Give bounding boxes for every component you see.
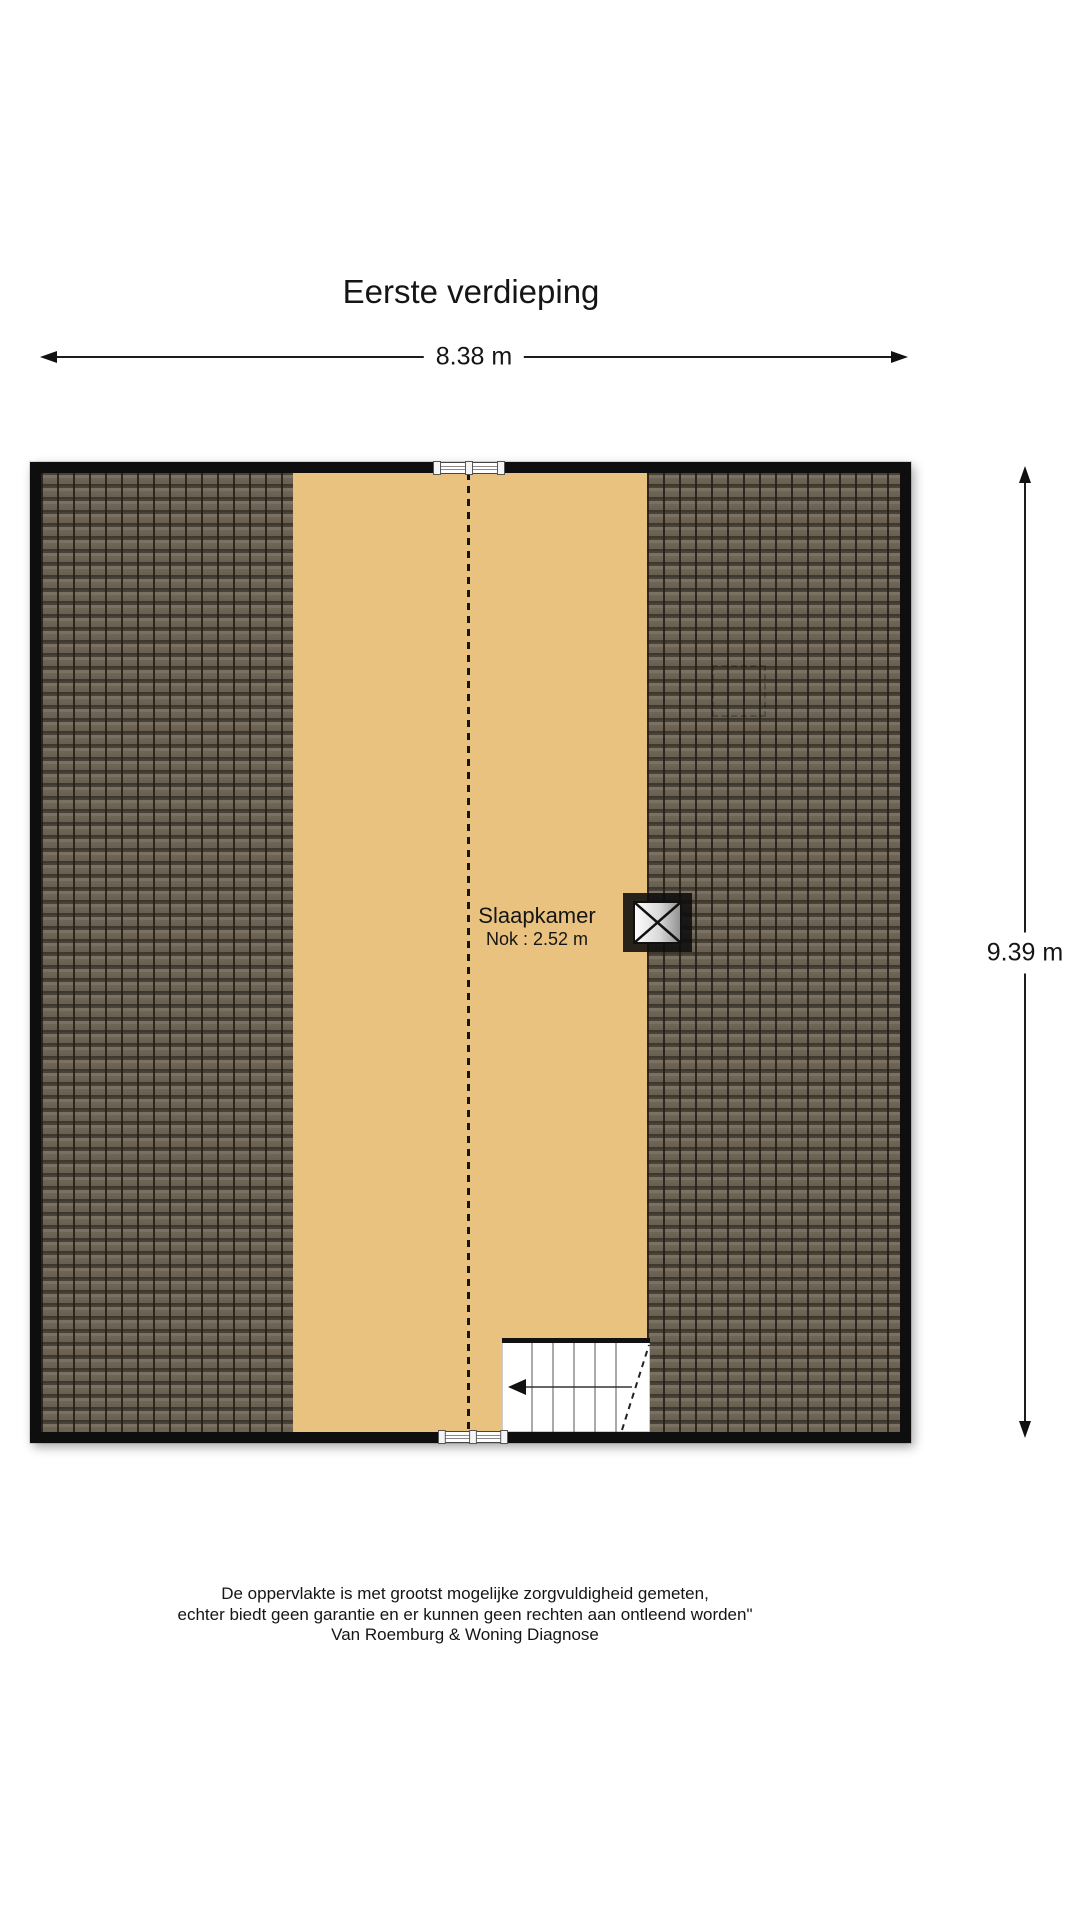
skylight-outline [712, 665, 766, 717]
arrow-right-icon [891, 351, 908, 363]
roof-window-icon [623, 893, 692, 952]
room-name: Slaapkamer [478, 903, 595, 928]
height-dimension: 9.39 m [1013, 466, 1037, 1438]
room-label: Slaapkamer Nok : 2.52 m [478, 903, 595, 950]
disclaimer-line-3: Van Roemburg & Woning Diagnose [177, 1625, 752, 1646]
disclaimer-line-1: De oppervlakte is met grootst mogelijke … [177, 1584, 752, 1605]
width-dimension-label: 8.38 m [424, 341, 524, 374]
disclaimer-line-2: echter biedt geen garantie en er kunnen … [177, 1605, 752, 1626]
bedroom-floor [293, 473, 647, 1432]
arrow-down-icon [1019, 1421, 1031, 1438]
ridge-dashed-line [467, 473, 470, 1432]
roof-area-left [41, 473, 293, 1432]
page-title: Eerste verdieping [343, 274, 600, 310]
arrow-left-icon [40, 351, 57, 363]
floor-plan: Slaapkamer Nok : 2.52 m [30, 462, 911, 1443]
height-dimension-label: 9.39 m [979, 933, 1071, 974]
window-top-icon [433, 461, 505, 475]
roof-area-right [647, 473, 900, 1432]
floor-plan-interior: Slaapkamer Nok : 2.52 m [41, 473, 900, 1432]
arrow-up-icon [1019, 466, 1031, 483]
ridge-height-label: Nok : 2.52 m [478, 928, 595, 950]
window-bottom-icon [438, 1430, 508, 1444]
width-dimension: 8.38 m [40, 347, 908, 369]
floorplan-page: Eerste verdieping 8.38 m 9.39 m Slaapkam… [0, 0, 1080, 1920]
staircase [502, 1338, 650, 1432]
footer-disclaimer: De oppervlakte is met grootst mogelijke … [177, 1584, 752, 1646]
